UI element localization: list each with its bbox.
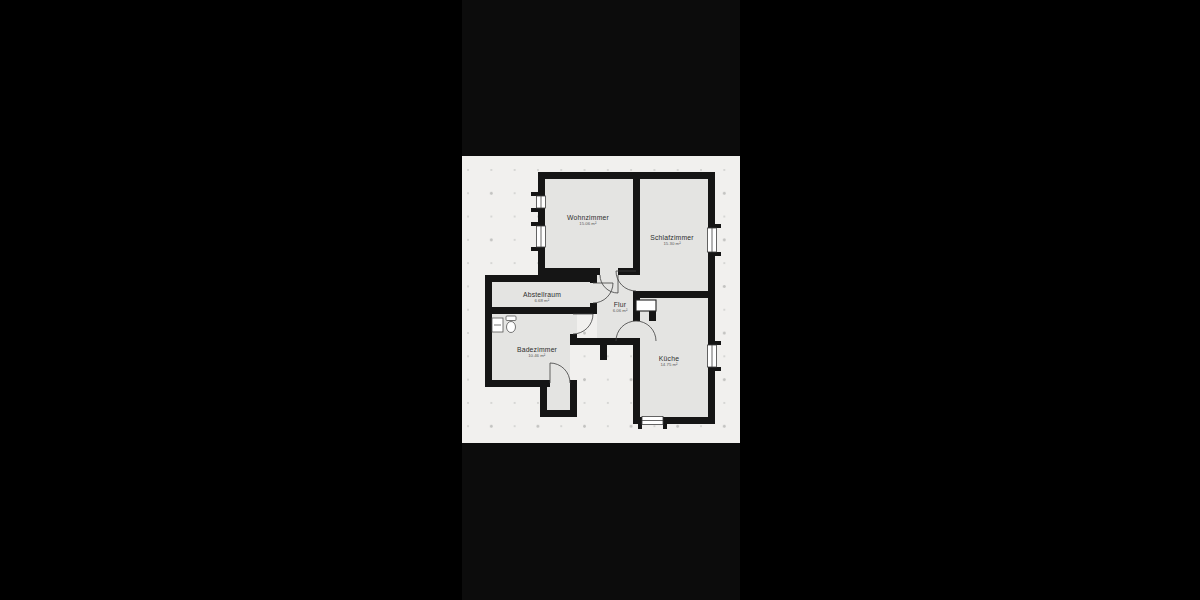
window-schlafzimmer [708, 228, 717, 252]
room-wohnzimmer [545, 179, 633, 275]
window-kueche-south [642, 417, 663, 425]
shaft-box [636, 300, 656, 311]
floorplan-screenshot: { "colors": { "page_background": "#00000… [0, 0, 1200, 600]
room-entry-nook [547, 387, 570, 410]
window-kueche-east [708, 345, 717, 367]
window-wohnzimmer-2 [537, 226, 546, 247]
bottom-black-bar [462, 443, 740, 600]
floorplan-drawing [462, 156, 740, 443]
toilet-icon [506, 316, 516, 333]
room-flur [597, 275, 633, 341]
room-badezimmer [492, 314, 570, 380]
floorplan-canvas: Wohnzimmer 15.06 m² Schlafzimmer 15.30 m… [462, 156, 740, 443]
sink-icon [492, 318, 503, 332]
room-abstellraum [492, 282, 590, 307]
top-black-bar [462, 0, 740, 156]
window-wohnzimmer-1 [537, 196, 546, 208]
room-schlafzimmer [640, 179, 708, 298]
